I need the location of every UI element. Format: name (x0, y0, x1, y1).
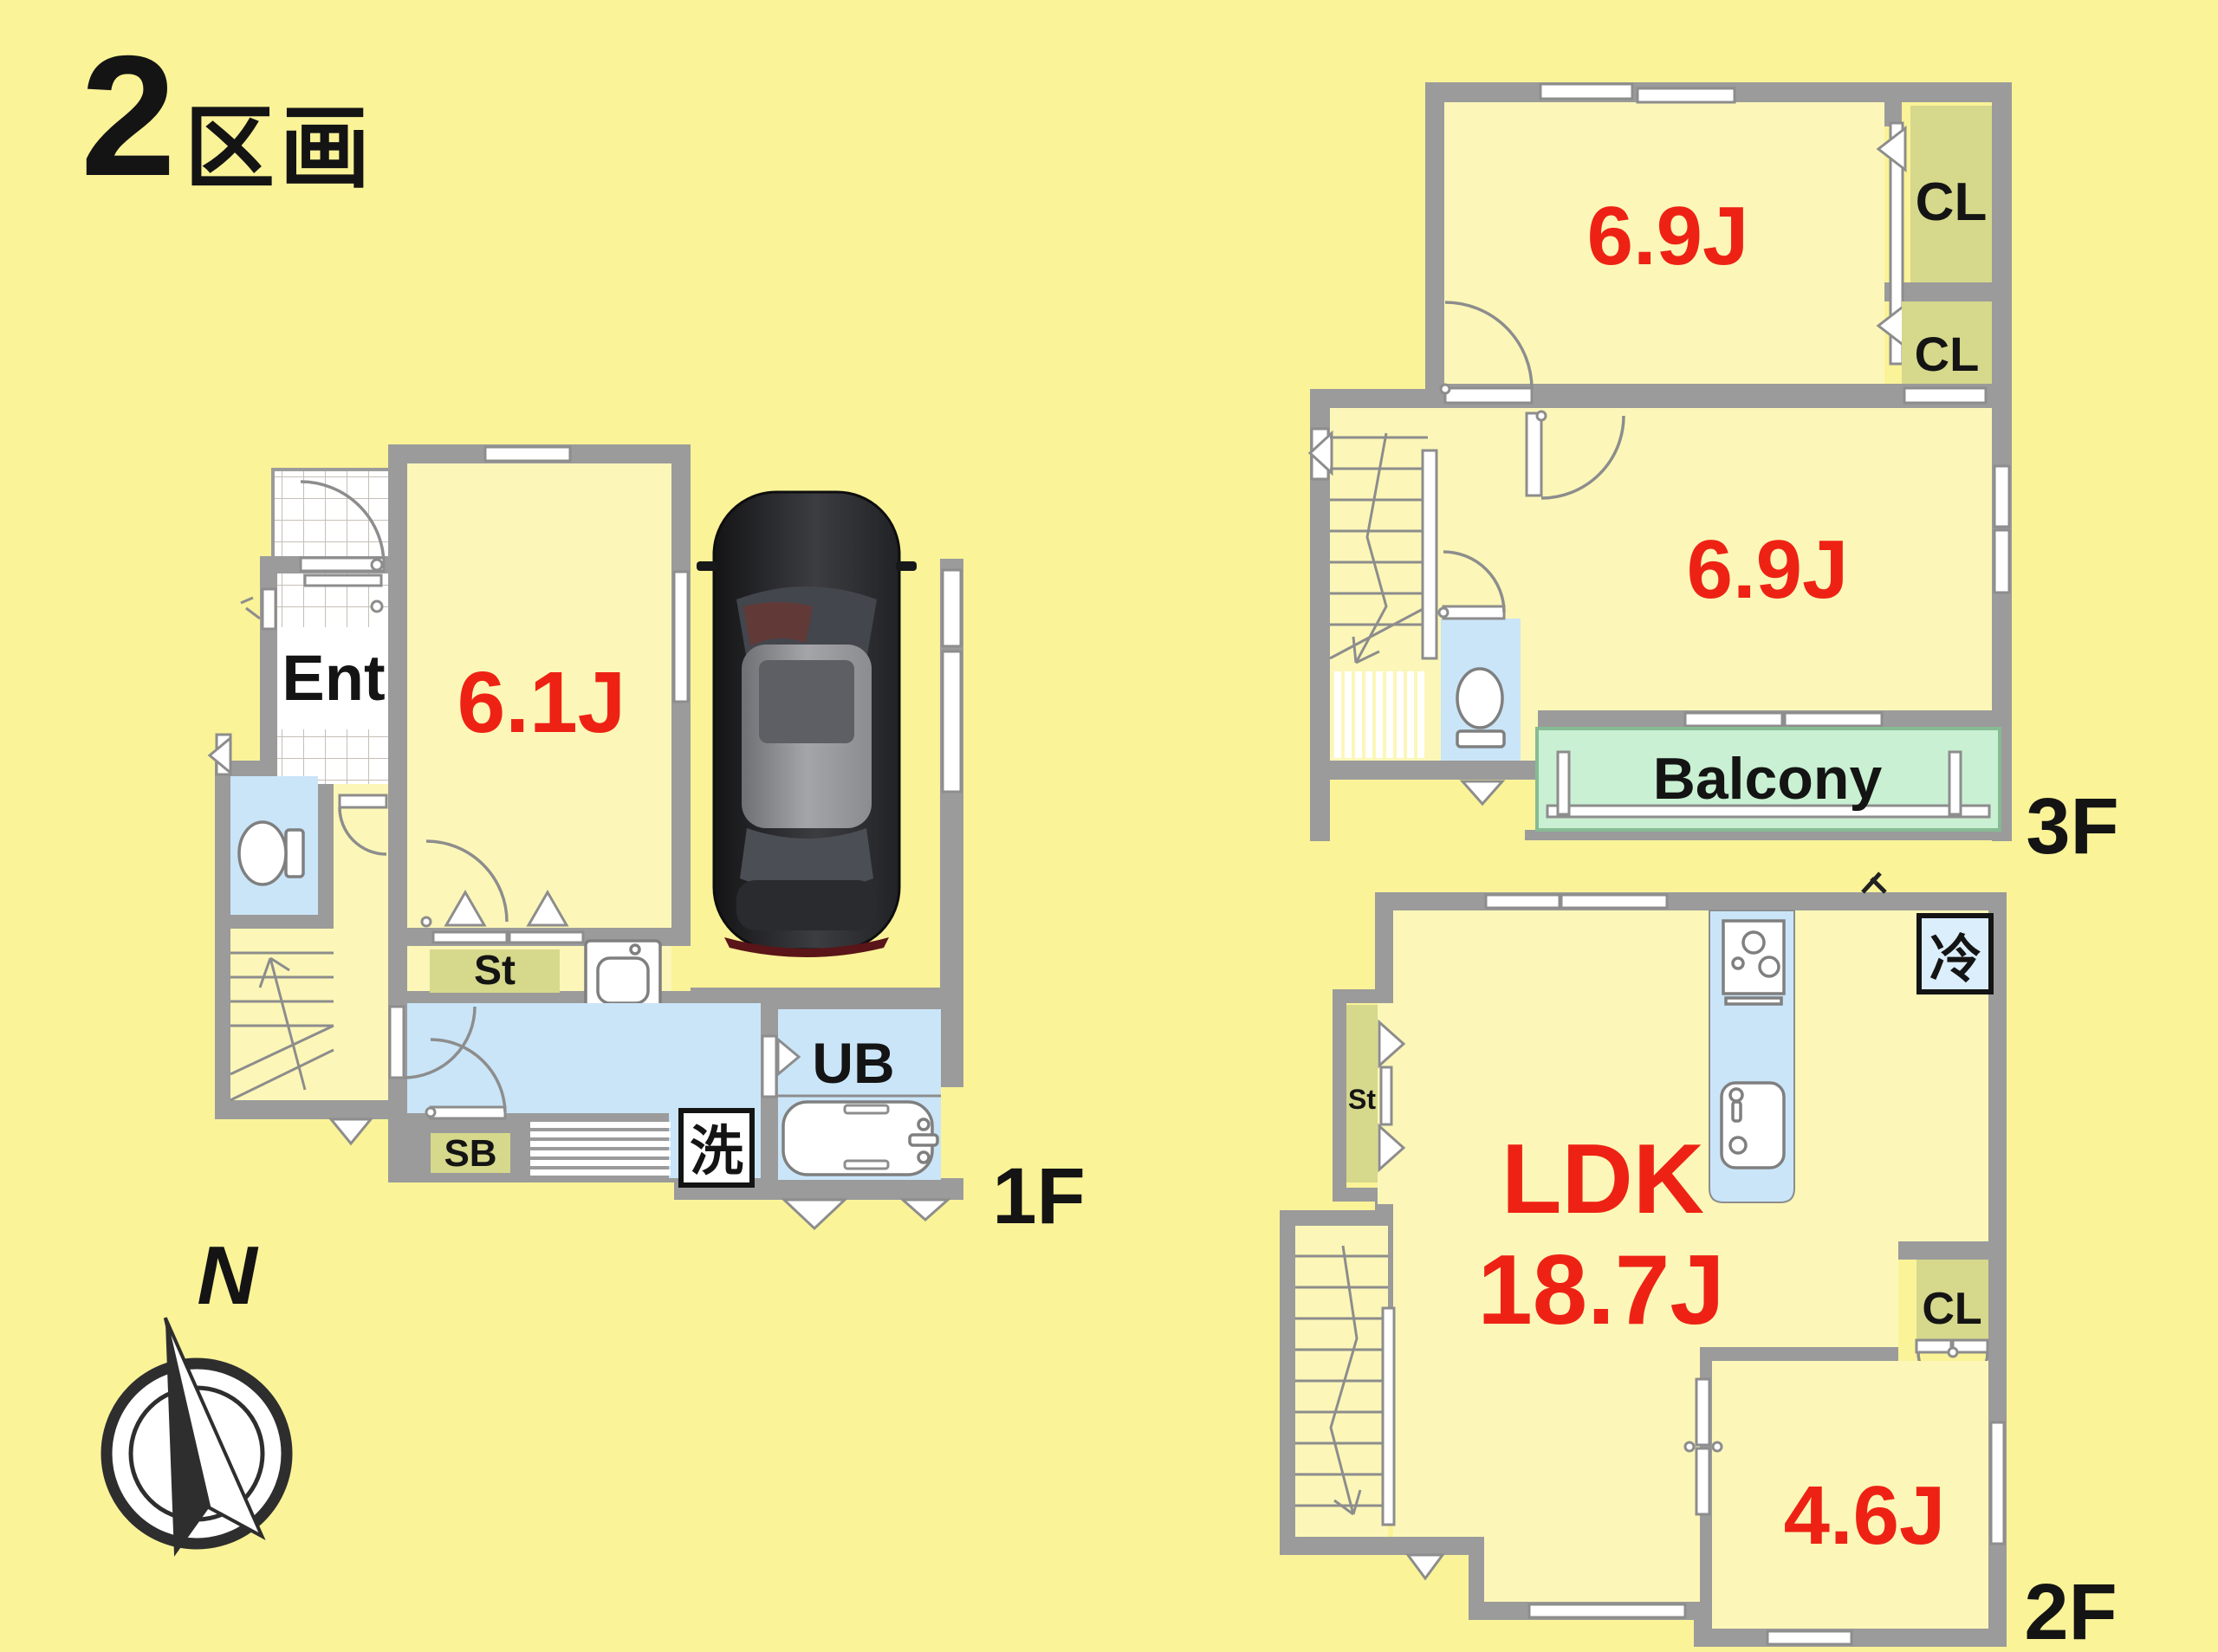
room-label-6-9j-1: 6.9J (1587, 190, 1749, 282)
room-label-cl2-3f: CL (1915, 327, 1980, 381)
title-suffix: 区画 (185, 99, 375, 199)
laundry-box: 洗 (681, 1111, 752, 1185)
hallway-1f (331, 784, 388, 1143)
kitchen-counter (1709, 910, 1794, 1202)
entrance-porch (273, 470, 407, 565)
room-label-sb: SB (444, 1132, 496, 1175)
stairs-1f (230, 929, 334, 1100)
room-label-cl-2f: CL (1922, 1284, 1981, 1334)
refrigerator-box: 冷 (1919, 916, 1991, 992)
room-label-ldk: LDK (1501, 1124, 1704, 1234)
room-label-6-9j-2: 6.9J (1687, 523, 1849, 616)
room-label-cl1-3f: CL (1916, 172, 1988, 232)
western-room1-3f: 6.9J (1441, 84, 1884, 403)
title-number: 2 (81, 20, 176, 211)
western-room-4-6j: 4.6J (1685, 1361, 2004, 1644)
floor-label-3f: 3F (2026, 782, 2118, 871)
stair-hatch-3f (1334, 671, 1424, 758)
balcony-3f: Balcony (1525, 729, 2012, 840)
toilet-icon-3f (1457, 669, 1504, 747)
toilet-icon (239, 822, 303, 884)
room-label-laundry: 洗 (690, 1122, 743, 1182)
stove-icon (1723, 921, 1784, 1004)
room-label-6-1j: 6.1J (457, 654, 626, 751)
room-label-4-6j: 4.6J (1784, 1469, 1946, 1562)
washbasin-icon (586, 941, 660, 1010)
room-label-ldk-size: 18.7J (1477, 1235, 1724, 1345)
room-label-refrigerator: 冷 (1929, 930, 1981, 988)
room-label-balcony: Balcony (1653, 746, 1883, 812)
western-room-6-1j: 6.1J (407, 447, 688, 943)
room-label-entrance: Ent (282, 642, 385, 714)
western-room2-3f: 6.9J (1527, 408, 2009, 726)
floorplan-page: 2 区画 (0, 0, 2218, 1652)
floor-label-1f: 1F (992, 1152, 1085, 1241)
floor-label-2f: 2F (2024, 1568, 2117, 1652)
floorplan-canvas: 2 区画 (0, 0, 2218, 1652)
car-icon (697, 492, 917, 957)
floor-2f-plan: LDK 18.7J 冷 (1280, 873, 2117, 1652)
stairs-2f (1295, 1226, 1394, 1537)
room-label-ub: UB (812, 1031, 894, 1095)
compass-north-label: N (197, 1229, 258, 1322)
room-label-st-1f: St (474, 948, 516, 994)
bathtub-icon (783, 1102, 937, 1175)
floor-3f-plan: 6.9J CL CL (1310, 82, 2119, 871)
room-label-st-2f: St (1348, 1084, 1376, 1115)
sink-icon (1722, 1083, 1784, 1168)
